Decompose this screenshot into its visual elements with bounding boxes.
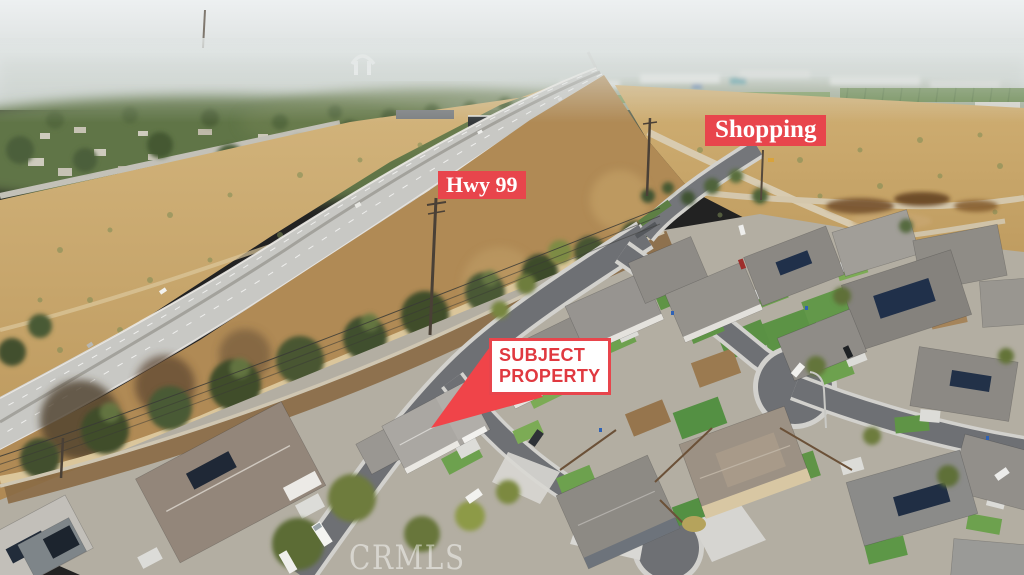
aerial-photo bbox=[0, 0, 1024, 575]
hwy-99-label: Hwy 99 bbox=[438, 171, 526, 199]
subject-sign-line1: SUBJECT bbox=[499, 345, 608, 366]
aerial-photo-container: Shopping Hwy 99 SUBJECT PROPERTY CRMLS bbox=[0, 0, 1024, 575]
shopping-label: Shopping bbox=[705, 115, 826, 146]
subject-property-sign: SUBJECT PROPERTY bbox=[489, 338, 611, 395]
haze-overlay bbox=[0, 38, 1024, 123]
crmls-watermark: CRMLS bbox=[349, 538, 466, 575]
subject-sign-line2: PROPERTY bbox=[499, 366, 608, 387]
